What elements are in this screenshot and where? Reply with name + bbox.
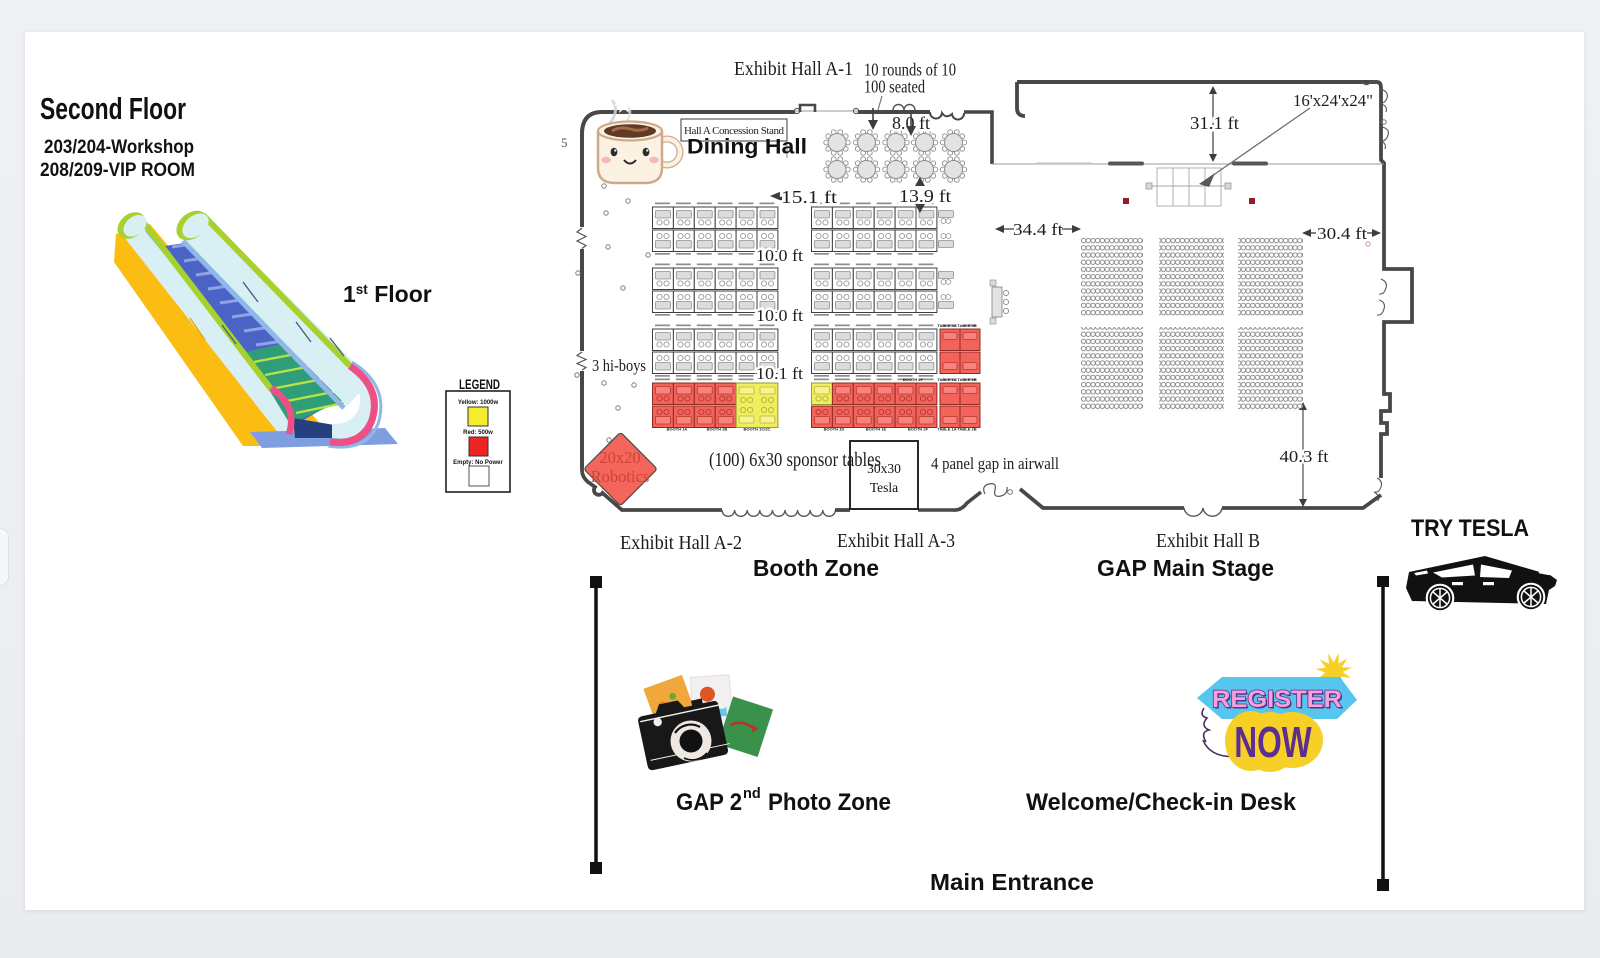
svg-text:5: 5 [561,135,568,150]
svg-text:20x20: 20x20 [599,448,640,467]
svg-text:Main Entrance: Main Entrance [930,869,1094,895]
svg-text:15.1 ft: 15.1 ft [781,187,837,207]
svg-text:BOOTH 2F: BOOTH 2F [903,377,924,382]
svg-text:BOOTH 1C/2C: BOOTH 1C/2C [744,427,771,432]
svg-text:Exhibit Hall B: Exhibit Hall B [1156,530,1260,552]
svg-text:3 hi-boys: 3 hi-boys [592,356,646,375]
svg-text:Exhibit Hall A-2: Exhibit Hall A-2 [620,532,742,554]
svg-text:100 seated: 100 seated [864,77,925,97]
svg-text:10.1 ft: 10.1 ft [756,364,803,383]
svg-text:203/204-Workshop: 203/204-Workshop [44,137,194,158]
svg-text:(100) 6x30 sponsor tables: (100) 6x30 sponsor tables [709,449,881,471]
svg-text:30.4 ft: 30.4 ft [1317,224,1367,243]
svg-text:208/209-VIP ROOM: 208/209-VIP ROOM [40,160,195,181]
svg-text:TABLE 4A: TABLE 4A [937,323,956,328]
svg-text:TABLE 1A: TABLE 1A [937,377,956,382]
svg-text:Robotics: Robotics [591,467,650,486]
svg-text:4 panel gap in airwall: 4 panel gap in airwall [931,454,1059,473]
svg-text:34.4 ft: 34.4 ft [1013,220,1063,239]
svg-text:1st Floor: 1st Floor [343,281,432,307]
svg-text:REGISTER: REGISTER [1212,686,1342,713]
svg-text:31.1 ft: 31.1 ft [1190,113,1239,133]
svg-text:TABLE 4B: TABLE 4B [957,323,976,328]
svg-text:GAP Main Stage: GAP Main Stage [1097,555,1274,581]
svg-text:NOW: NOW [1234,718,1312,767]
svg-text:TABLE 2B: TABLE 2B [957,427,976,432]
svg-text:BOOTH 1D: BOOTH 1D [824,427,845,432]
svg-text:BOOTH 1A: BOOTH 1A [667,427,688,432]
svg-text:Empty: No Power: Empty: No Power [453,460,503,466]
svg-text:Yellow: 1000w: Yellow: 1000w [458,400,499,406]
svg-text:Tesla: Tesla [870,480,898,495]
svg-text:BOOTH 1E: BOOTH 1E [866,427,887,432]
svg-text:Exhibit Hall A-3: Exhibit Hall A-3 [837,530,955,552]
svg-text:TABLE 2B: TABLE 2B [957,377,976,382]
svg-text:GAP 2: GAP 2 [676,789,742,816]
svg-text:Second Floor: Second Floor [40,91,186,126]
svg-text:LEGEND: LEGEND [459,376,500,392]
svg-text:16'x24'x24": 16'x24'x24" [1293,91,1373,110]
svg-text:Dining Hall: Dining Hall [687,136,807,159]
svg-text:Welcome/Check-in Desk: Welcome/Check-in Desk [1026,789,1297,816]
svg-text:40.3 ft: 40.3 ft [1280,447,1329,466]
svg-text:10.0 ft: 10.0 ft [756,246,803,265]
svg-text:Red: 500w: Red: 500w [463,430,493,436]
svg-text:BOOTH 2B: BOOTH 2B [707,427,728,432]
svg-text:nd: nd [743,786,761,802]
svg-text:10.0 ft: 10.0 ft [756,306,803,325]
svg-text:13.9 ft: 13.9 ft [899,186,951,206]
svg-text:BOOTH 2F: BOOTH 2F [908,427,929,432]
svg-text:Exhibit Hall A-1: Exhibit Hall A-1 [734,58,853,80]
svg-text:Booth Zone: Booth Zone [753,555,879,581]
svg-text:TRY TESLA: TRY TESLA [1411,515,1529,542]
svg-text:TABLE 1A: TABLE 1A [937,427,956,432]
svg-text:Photo Zone: Photo Zone [768,789,891,816]
